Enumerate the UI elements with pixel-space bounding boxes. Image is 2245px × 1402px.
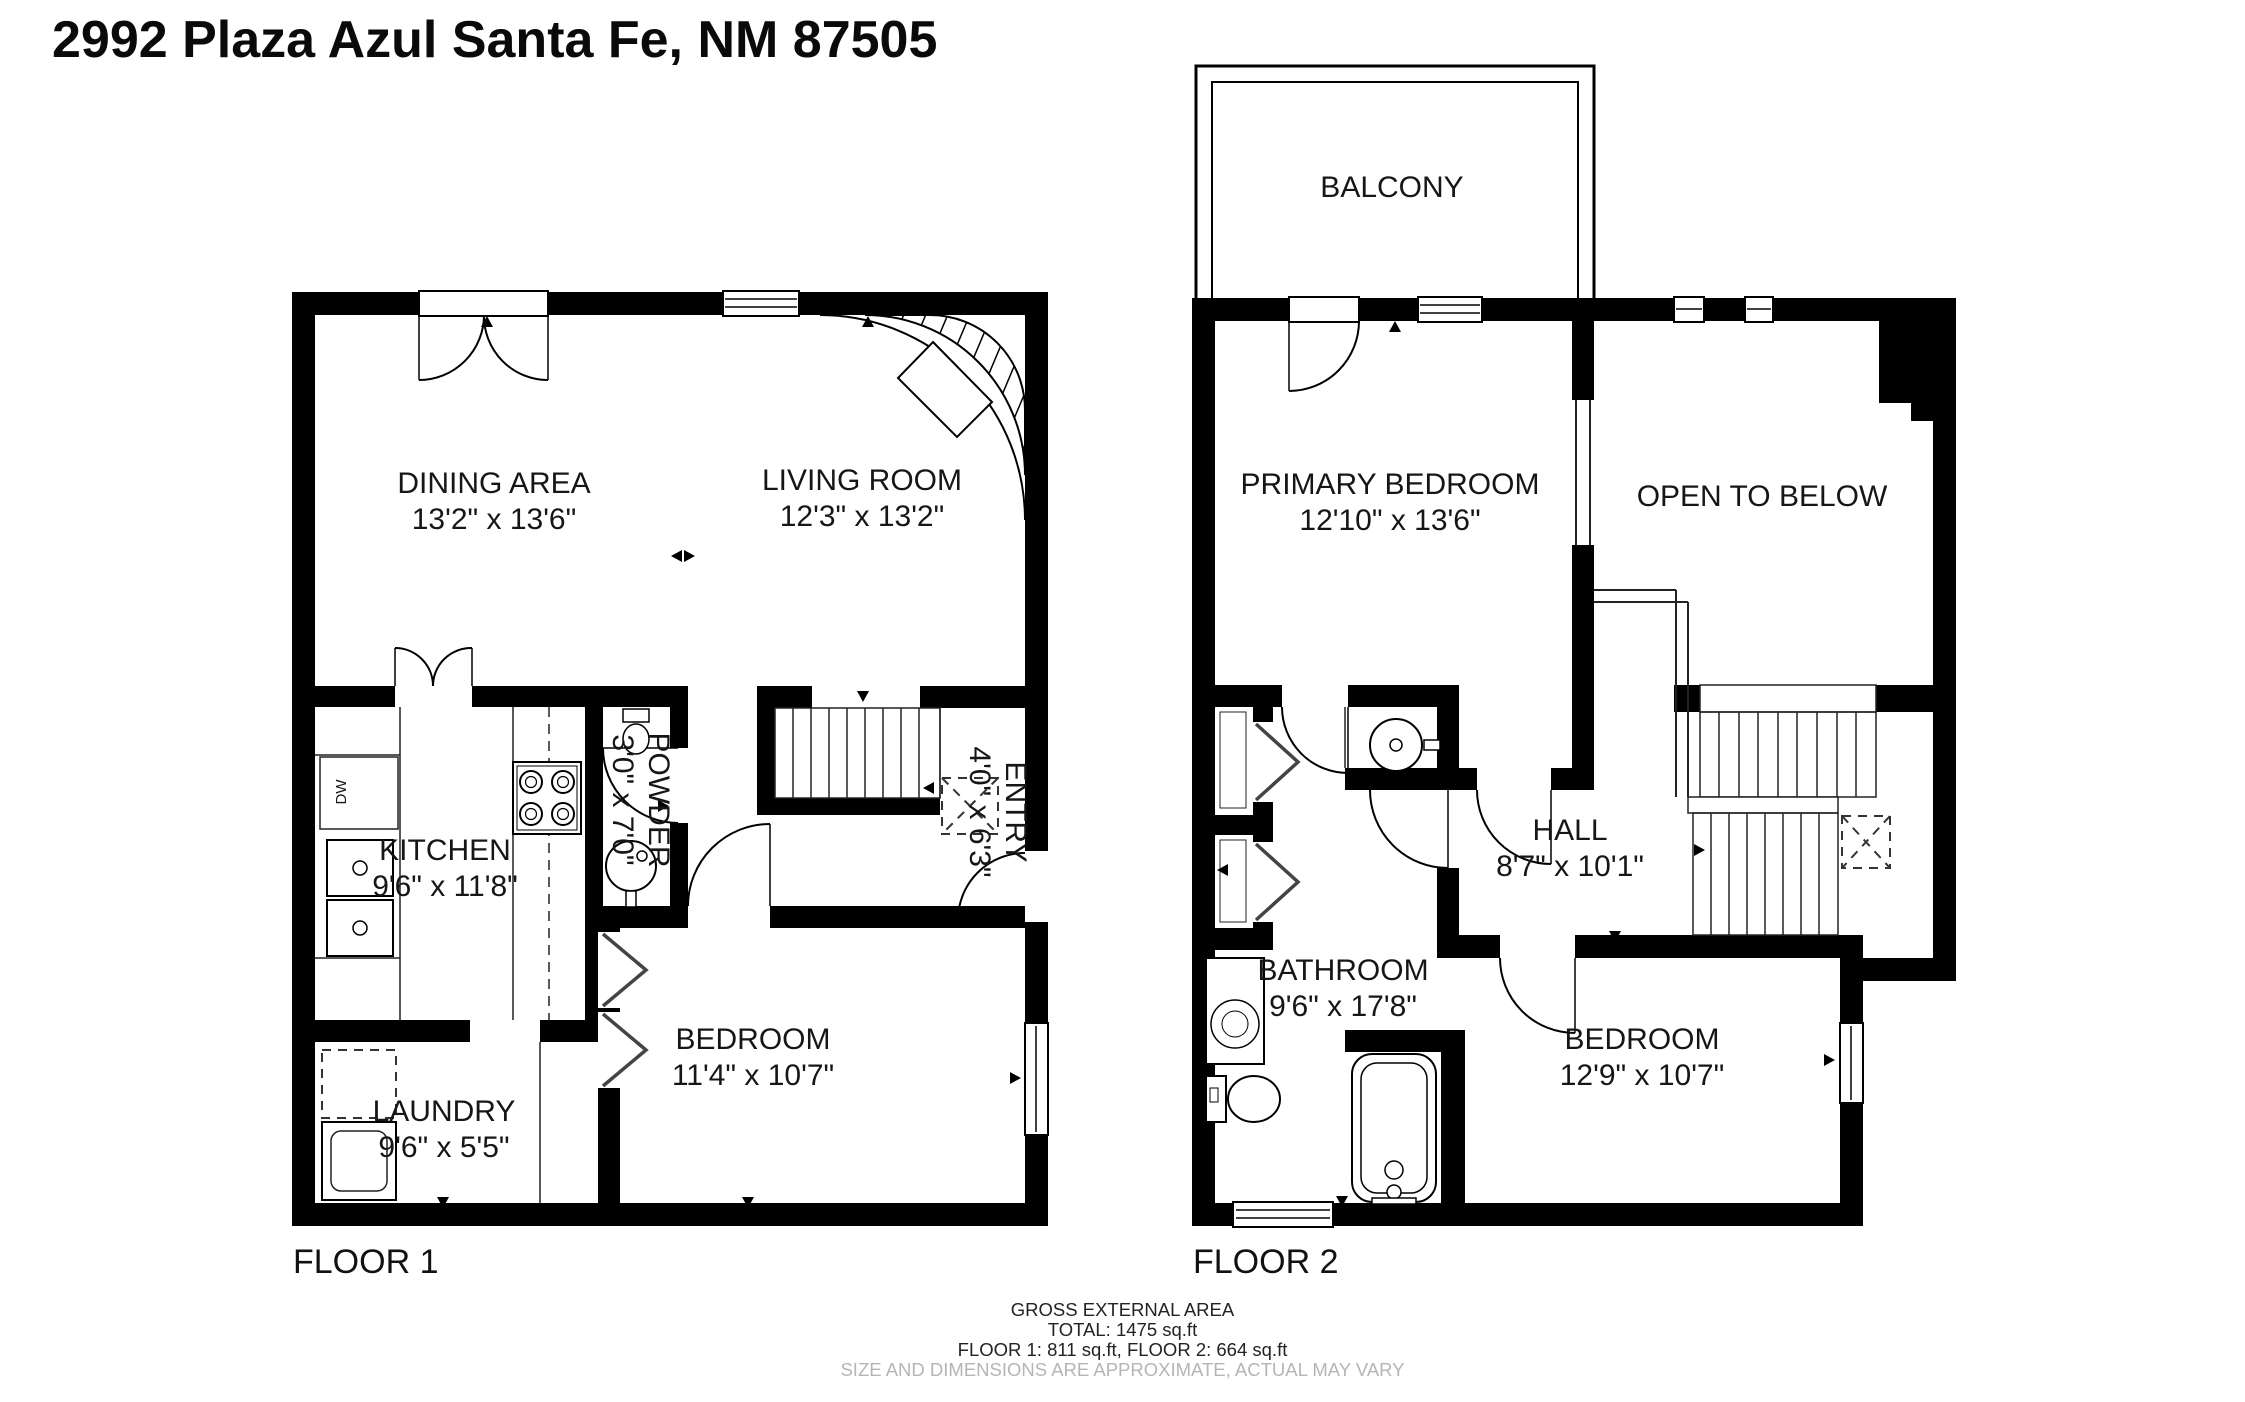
room-name: BATHROOM <box>1257 953 1428 989</box>
page-title: 2992 Plaza Azul Santa Fe, NM 87505 <box>52 10 937 70</box>
railing <box>1594 590 1688 797</box>
room-label-bedroom-f1: BEDROOM 11'4" x 10'7" <box>672 1022 834 1094</box>
window <box>1233 1202 1333 1227</box>
kitchen-double-door <box>395 648 472 686</box>
room-dims: 9'6" x 5'5" <box>373 1130 516 1166</box>
sink-icon <box>1370 719 1440 771</box>
room-name: BEDROOM <box>1560 1022 1725 1058</box>
room-label-open-to-below: OPEN TO BELOW <box>1637 479 1888 515</box>
room-name: PRIMARY BEDROOM <box>1241 467 1540 503</box>
window <box>1418 297 1482 322</box>
room-dims: 4'0" x 6'3" <box>961 746 997 877</box>
room-label-primary-bedroom: PRIMARY BEDROOM 12'10" x 13'6" <box>1241 467 1540 539</box>
floorplan-page: 2992 Plaza Azul Santa Fe, NM 87505 DININ… <box>0 0 2245 1402</box>
window <box>1025 1023 1048 1135</box>
room-name: LAUNDRY <box>373 1094 516 1130</box>
disclaimer: SIZE AND DIMENSIONS ARE APPROXIMATE, ACT… <box>0 1360 2245 1380</box>
gross-area-heading: GROSS EXTERNAL AREA <box>0 1300 2245 1320</box>
stove-icon <box>513 762 581 834</box>
stairs-floor2 <box>1688 685 1876 935</box>
room-dims: 12'3" x 13'2" <box>762 499 962 535</box>
room-label-living-room: LIVING ROOM 12'3" x 13'2" <box>762 463 962 535</box>
room-label-balcony: BALCONY <box>1320 170 1463 206</box>
skylight-marker <box>1842 816 1890 868</box>
stairs-floor1 <box>775 708 940 798</box>
room-label-bathroom: BATHROOM 9'6" x 17'8" <box>1257 953 1428 1025</box>
floorplan-drawing <box>0 0 2245 1402</box>
railing <box>1576 400 1590 545</box>
window <box>1840 1023 1863 1103</box>
room-dims: 8'7" x 10'1" <box>1496 849 1644 885</box>
window <box>723 291 799 316</box>
room-label-kitchen: KITCHEN 9'6" x 11'8" <box>372 833 518 905</box>
dishwasher-icon <box>320 757 398 829</box>
room-name: ENTRY <box>997 746 1033 877</box>
window <box>1745 297 1773 322</box>
room-label-hall: HALL 8'7" x 10'1" <box>1496 813 1644 885</box>
floor2-label: FLOOR 2 <box>1193 1243 1338 1282</box>
floor-areas: FLOOR 1: 811 sq.ft, FLOOR 2: 664 sq.ft <box>0 1340 2245 1360</box>
room-name: LIVING ROOM <box>762 463 962 499</box>
room-dims: 3'0" x 7'0" <box>604 733 640 868</box>
room-name: POWDER <box>640 733 676 868</box>
room-name: KITCHEN <box>372 833 518 869</box>
room-name: HALL <box>1496 813 1644 849</box>
washer-icon <box>1206 958 1264 1064</box>
room-dims: 9'6" x 17'8" <box>1257 989 1428 1025</box>
room-dims: 13'2" x 13'6" <box>397 502 590 538</box>
dimension-markers <box>1217 321 1835 1207</box>
room-dims: 9'6" x 11'8" <box>372 869 518 905</box>
closet-opening <box>1253 722 1273 802</box>
room-dims: 12'10" x 13'6" <box>1241 503 1540 539</box>
room-name: BALCONY <box>1320 170 1463 206</box>
room-name: DINING AREA <box>397 466 590 502</box>
room-label-laundry: LAUNDRY 9'6" x 5'5" <box>373 1094 516 1166</box>
bathtub-icon <box>1352 1054 1436 1204</box>
room-label-entry: ENTRY 4'0" x 6'3" <box>961 746 1033 877</box>
room-dims: 11'4" x 10'7" <box>672 1058 834 1094</box>
french-door <box>419 291 548 380</box>
total-area: TOTAL: 1475 sq.ft <box>0 1320 2245 1340</box>
window <box>1674 297 1704 322</box>
area-summary: GROSS EXTERNAL AREA TOTAL: 1475 sq.ft FL… <box>0 1300 2245 1380</box>
room-label-bedroom-f2: BEDROOM 12'9" x 10'7" <box>1560 1022 1725 1094</box>
dishwasher-label: DW <box>334 780 350 805</box>
closet-opening <box>1253 842 1273 922</box>
bedroom-door-arc <box>688 824 770 906</box>
toilet-icon <box>1206 1076 1280 1122</box>
room-label-dining-area: DINING AREA 13'2" x 13'6" <box>397 466 590 538</box>
balcony-door <box>1289 297 1359 391</box>
room-name: OPEN TO BELOW <box>1637 479 1888 515</box>
room-name: BEDROOM <box>672 1022 834 1058</box>
floor1-label: FLOOR 1 <box>293 1243 438 1282</box>
room-label-powder: POWDER 3'0" x 7'0" <box>604 733 676 868</box>
room-dims: 12'9" x 10'7" <box>1560 1058 1725 1094</box>
